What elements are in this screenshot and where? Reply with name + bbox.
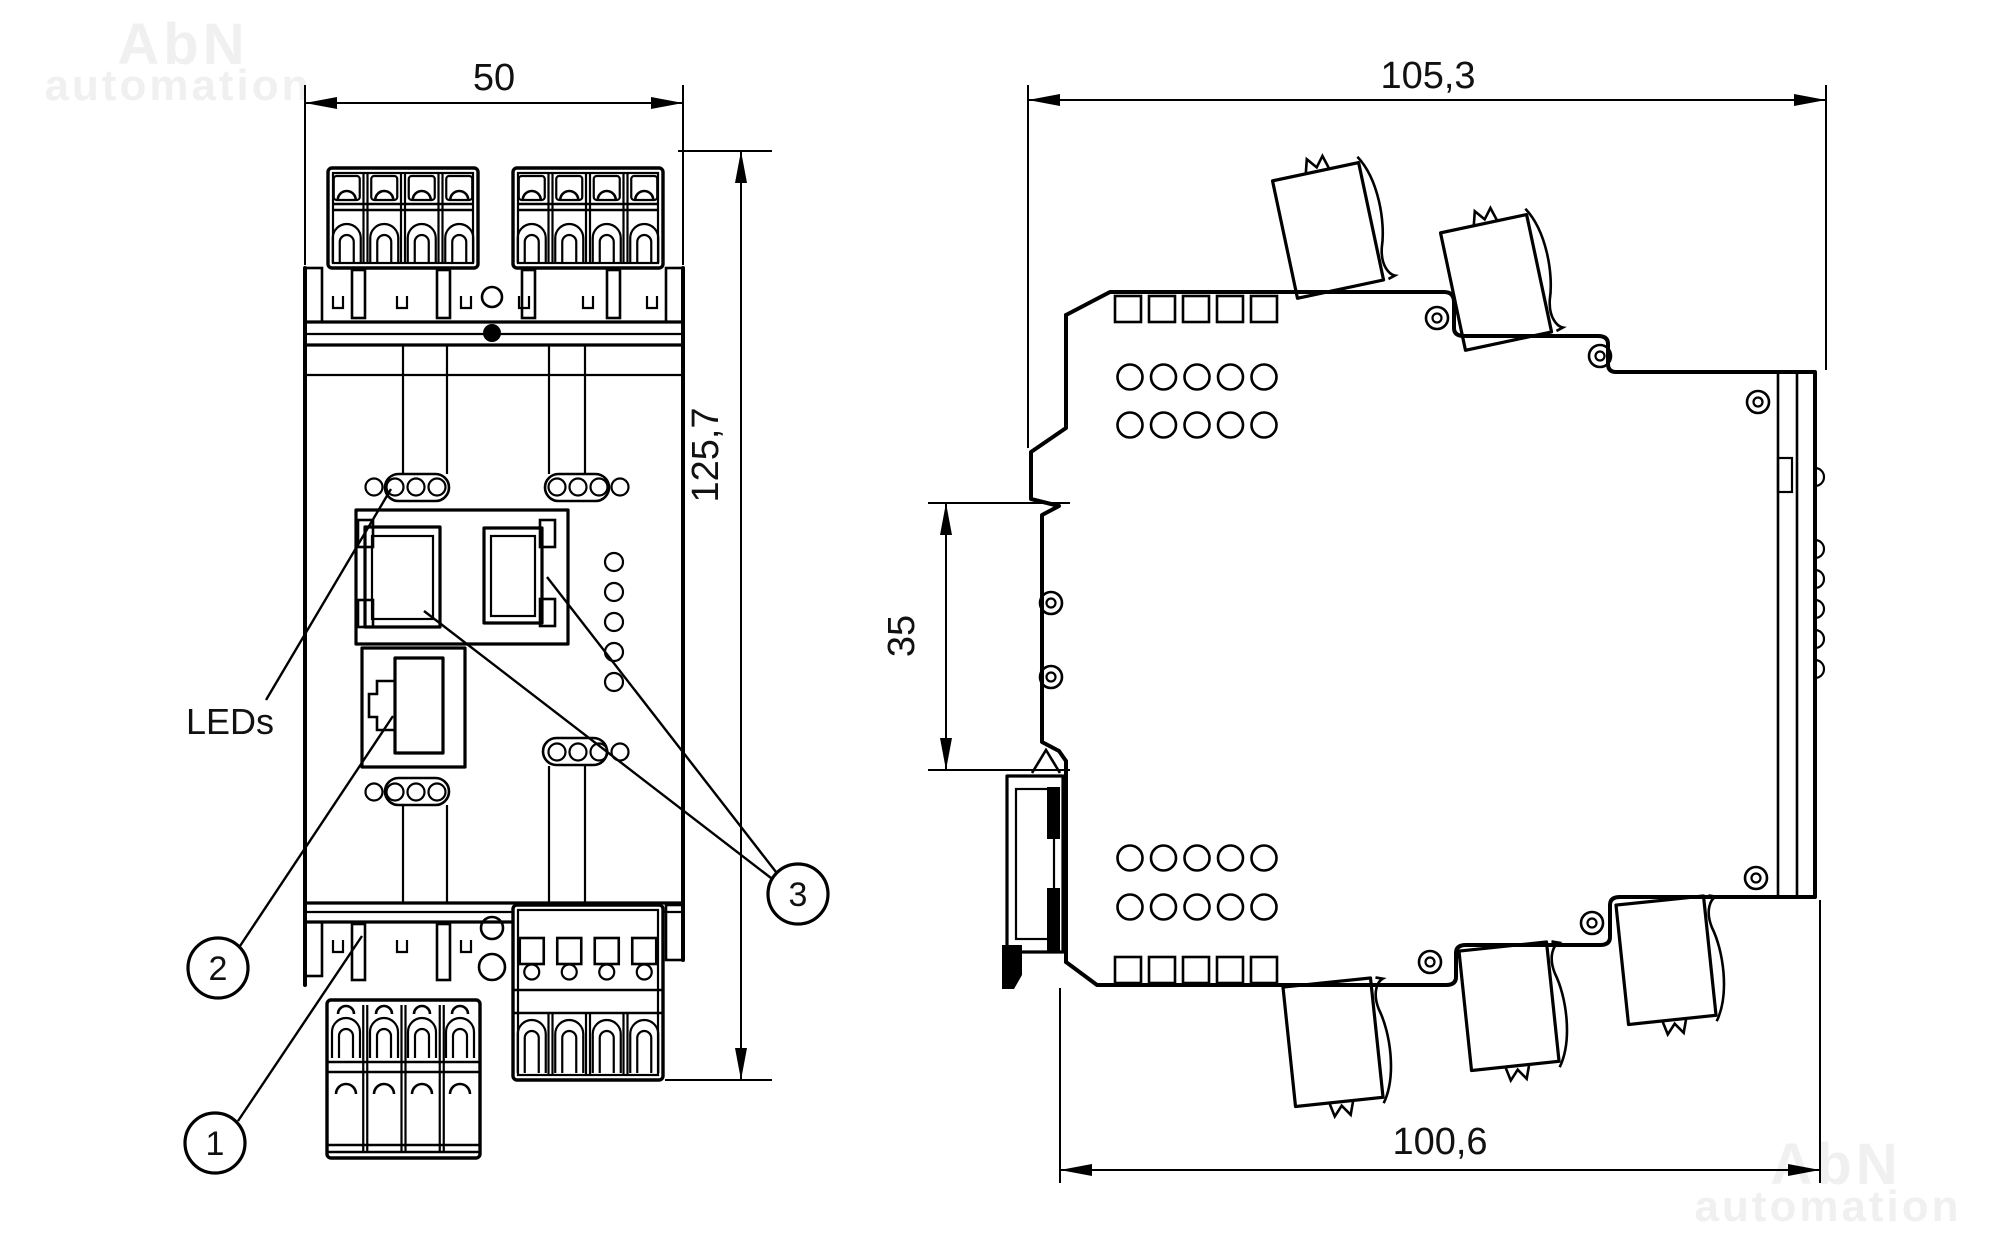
din-rail-clip[interactable] bbox=[1002, 750, 1063, 989]
clip-foot bbox=[1002, 945, 1022, 989]
connector-block-bottom-right bbox=[513, 905, 663, 1080]
dimension-value-rail: 35 bbox=[881, 615, 923, 657]
led-indicator bbox=[570, 744, 587, 761]
watermark-top-left: AbN automation bbox=[44, 12, 311, 110]
led-group-top-left bbox=[366, 479, 446, 496]
rj45-port-2[interactable] bbox=[484, 520, 555, 626]
plug-connector-bottom-1[interactable] bbox=[1283, 977, 1396, 1121]
vent-holes-row bbox=[1118, 365, 1277, 390]
side-view: 105,3 bbox=[881, 55, 1826, 1183]
led-indicator bbox=[387, 784, 404, 801]
led-indicator bbox=[605, 583, 623, 601]
housing-screw bbox=[1581, 912, 1603, 934]
led-indicator bbox=[570, 479, 587, 496]
led-label: LEDs bbox=[186, 701, 274, 742]
clip-spring bbox=[1047, 787, 1060, 839]
center-screw bbox=[483, 324, 501, 342]
led-indicator bbox=[549, 744, 566, 761]
dimension-value-total-depth: 105,3 bbox=[1380, 55, 1475, 97]
led-group-top-right bbox=[549, 479, 629, 496]
housing-screw bbox=[1419, 951, 1441, 973]
center-post-hole bbox=[479, 954, 505, 980]
watermark-bottom-right: AbN automation bbox=[1694, 1132, 1961, 1231]
led-indicator bbox=[591, 479, 608, 496]
flange-ear-right bbox=[666, 905, 683, 960]
led-indicator bbox=[605, 643, 623, 661]
vent-squares-top bbox=[1115, 296, 1277, 322]
ethernet-port-area bbox=[356, 510, 568, 644]
cage-post bbox=[607, 270, 620, 318]
vent-holes-row bbox=[1118, 846, 1277, 871]
led-indicator bbox=[605, 673, 623, 691]
panel-notch bbox=[1778, 458, 1792, 492]
cage-post bbox=[522, 270, 535, 318]
service-port[interactable] bbox=[362, 648, 465, 767]
led-indicator bbox=[605, 553, 623, 571]
plug-connector-bottom-2[interactable] bbox=[1459, 941, 1572, 1085]
led-indicator bbox=[549, 479, 566, 496]
device-body-side bbox=[1031, 292, 1824, 985]
housing-screw bbox=[1426, 307, 1448, 329]
dimension-total-depth: 105,3 bbox=[1028, 55, 1826, 448]
vent-squares-bottom bbox=[1115, 957, 1277, 983]
flange-ear-left bbox=[305, 268, 322, 322]
housing-outline bbox=[1066, 292, 1815, 985]
cage-post bbox=[437, 270, 450, 318]
front-view: 50 125,7 bbox=[185, 57, 828, 1173]
vent-holes-row bbox=[1118, 895, 1277, 920]
callouts: LEDs 2 1 3 bbox=[185, 489, 828, 1173]
clip-spring bbox=[1047, 888, 1060, 952]
rj45-port-1[interactable] bbox=[358, 520, 440, 627]
led-indicator bbox=[605, 613, 623, 631]
watermark-word: automation bbox=[44, 61, 311, 110]
led-indicator bbox=[429, 479, 446, 496]
port-frame bbox=[362, 648, 465, 767]
terminal-block-top-right bbox=[513, 168, 663, 268]
plug-connector-top-2[interactable] bbox=[1438, 198, 1564, 350]
rj45-latch bbox=[369, 681, 395, 730]
flange-ear-left bbox=[305, 922, 322, 976]
dimension-value-body-depth: 100,6 bbox=[1392, 1121, 1487, 1163]
technical-drawing-page: AbN automation AbN automation 50 125,7 bbox=[0, 0, 2000, 1238]
center-post-hole bbox=[481, 917, 503, 939]
led-indicator bbox=[366, 479, 383, 496]
leader-line-3a bbox=[424, 611, 771, 878]
dimension-value-height: 125,7 bbox=[685, 407, 727, 502]
cage-post bbox=[352, 270, 365, 318]
led-indicator bbox=[429, 784, 446, 801]
led-indicator bbox=[408, 479, 425, 496]
vent-holes-row bbox=[1118, 413, 1277, 438]
plug-connector-bottom-3[interactable] bbox=[1616, 895, 1729, 1039]
plug-connector-top-1[interactable] bbox=[1270, 146, 1396, 298]
watermark-word: automation bbox=[1694, 1182, 1961, 1231]
rj45-jack[interactable] bbox=[365, 527, 440, 627]
led-indicator bbox=[612, 479, 629, 496]
rj45-jack[interactable] bbox=[484, 528, 542, 623]
terminal-block-top-left bbox=[328, 168, 478, 268]
dimensional-drawing-canvas: AbN automation AbN automation 50 125,7 bbox=[0, 0, 2000, 1238]
terminal-block-bottom-left bbox=[327, 1000, 480, 1158]
mounting-cage-top bbox=[305, 268, 683, 342]
led-group-bottom-left bbox=[366, 784, 446, 801]
dimension-value-width: 50 bbox=[473, 57, 515, 99]
cage-post bbox=[437, 924, 450, 980]
led-indicator bbox=[408, 784, 425, 801]
housing-screw bbox=[1745, 867, 1767, 889]
balloon-1-number: 1 bbox=[206, 1125, 225, 1163]
flange-ear-right bbox=[666, 268, 683, 322]
dimension-body-depth: 100,6 bbox=[1060, 900, 1820, 1183]
rj45-opening bbox=[491, 536, 535, 616]
center-post-hole bbox=[482, 287, 502, 307]
cage-post bbox=[352, 924, 365, 980]
led-indicator bbox=[366, 784, 383, 801]
rj45-opening bbox=[372, 536, 433, 619]
rj45-jack[interactable] bbox=[395, 658, 443, 753]
din-rail-recess-profile bbox=[1031, 315, 1066, 962]
balloon-3-number: 3 bbox=[789, 876, 808, 914]
balloon-2-number: 2 bbox=[209, 950, 228, 988]
housing-screw bbox=[1747, 391, 1769, 413]
